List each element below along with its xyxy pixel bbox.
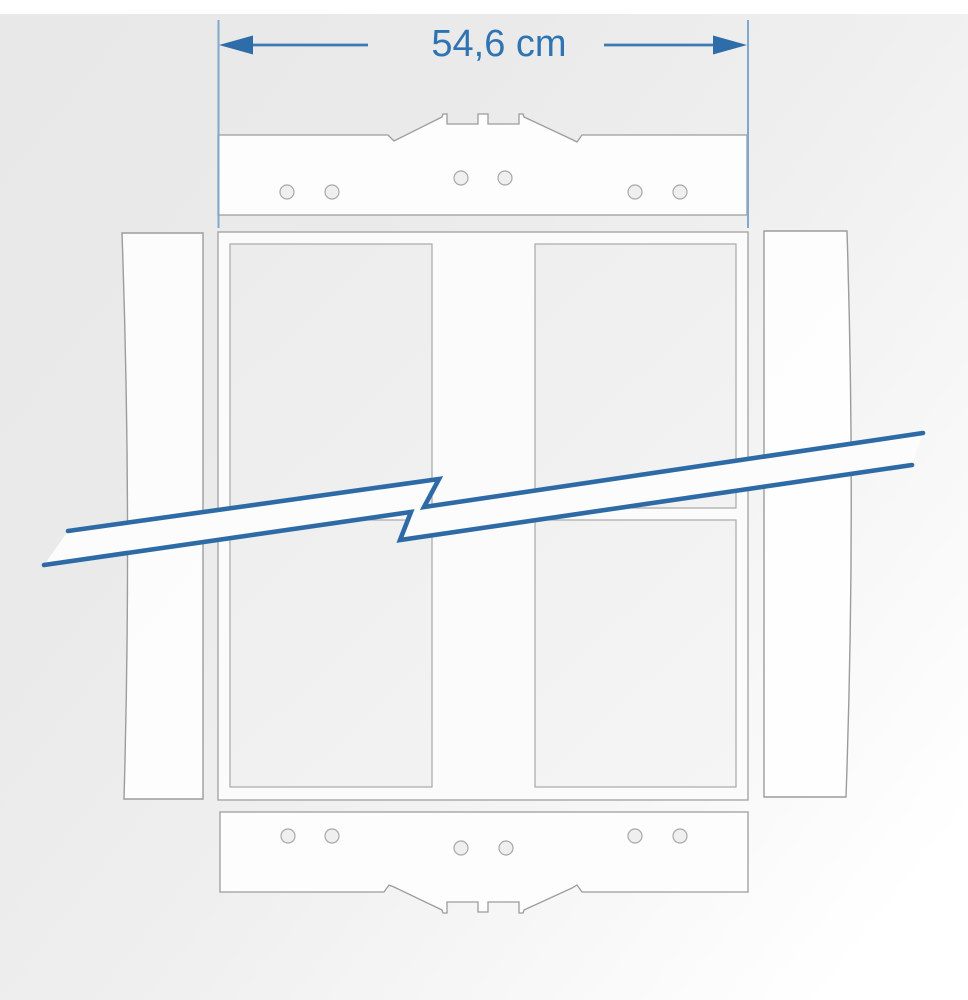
- screw-hole: [673, 185, 687, 199]
- technical-drawing: 54,6 cm: [0, 0, 968, 1000]
- bottom-board-outline: [220, 812, 748, 913]
- screw-hole: [280, 185, 294, 199]
- bottom-board: [220, 812, 748, 913]
- side-board-right: [764, 231, 851, 797]
- frame-opening-bottom-right: [535, 520, 736, 787]
- screw-hole: [454, 171, 468, 185]
- screw-hole: [628, 829, 642, 843]
- screw-hole: [454, 841, 468, 855]
- screw-hole: [498, 171, 512, 185]
- dimension-arrow-right-icon: [713, 36, 747, 55]
- top-board-outline: [218, 114, 747, 215]
- screw-hole: [628, 185, 642, 199]
- dimension-drawing-canvas: 54,6 cm: [0, 0, 968, 1000]
- screw-hole: [325, 185, 339, 199]
- screw-hole: [673, 829, 687, 843]
- dimension-label: 54,6 cm: [431, 23, 566, 65]
- screw-hole: [281, 829, 295, 843]
- screw-hole: [499, 841, 513, 855]
- frame-opening-top-left: [230, 244, 432, 508]
- screw-hole: [325, 829, 339, 843]
- top-board: [218, 114, 747, 215]
- frame-opening-bottom-left: [230, 520, 432, 787]
- dimension-arrow-left-icon: [219, 36, 253, 55]
